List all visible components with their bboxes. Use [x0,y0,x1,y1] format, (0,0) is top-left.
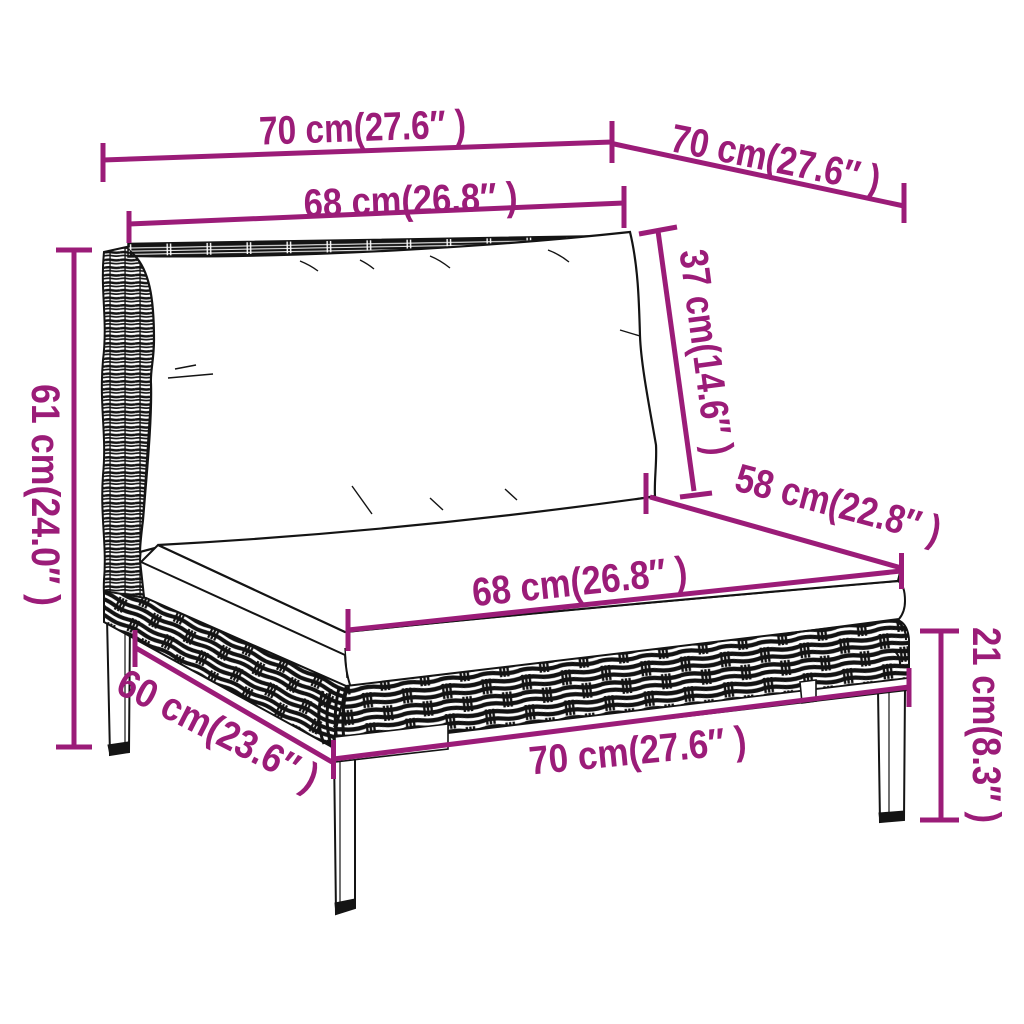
svg-text:70 cm(27.6″ ): 70 cm(27.6″ ) [258,102,466,153]
svg-text:68 cm(26.8″ ): 68 cm(26.8″ ) [303,175,518,226]
svg-text:21 cm(8.3″ ): 21 cm(8.3″ ) [964,627,1008,823]
svg-text:61 cm(24.0″ ): 61 cm(24.0″ ) [23,384,67,606]
